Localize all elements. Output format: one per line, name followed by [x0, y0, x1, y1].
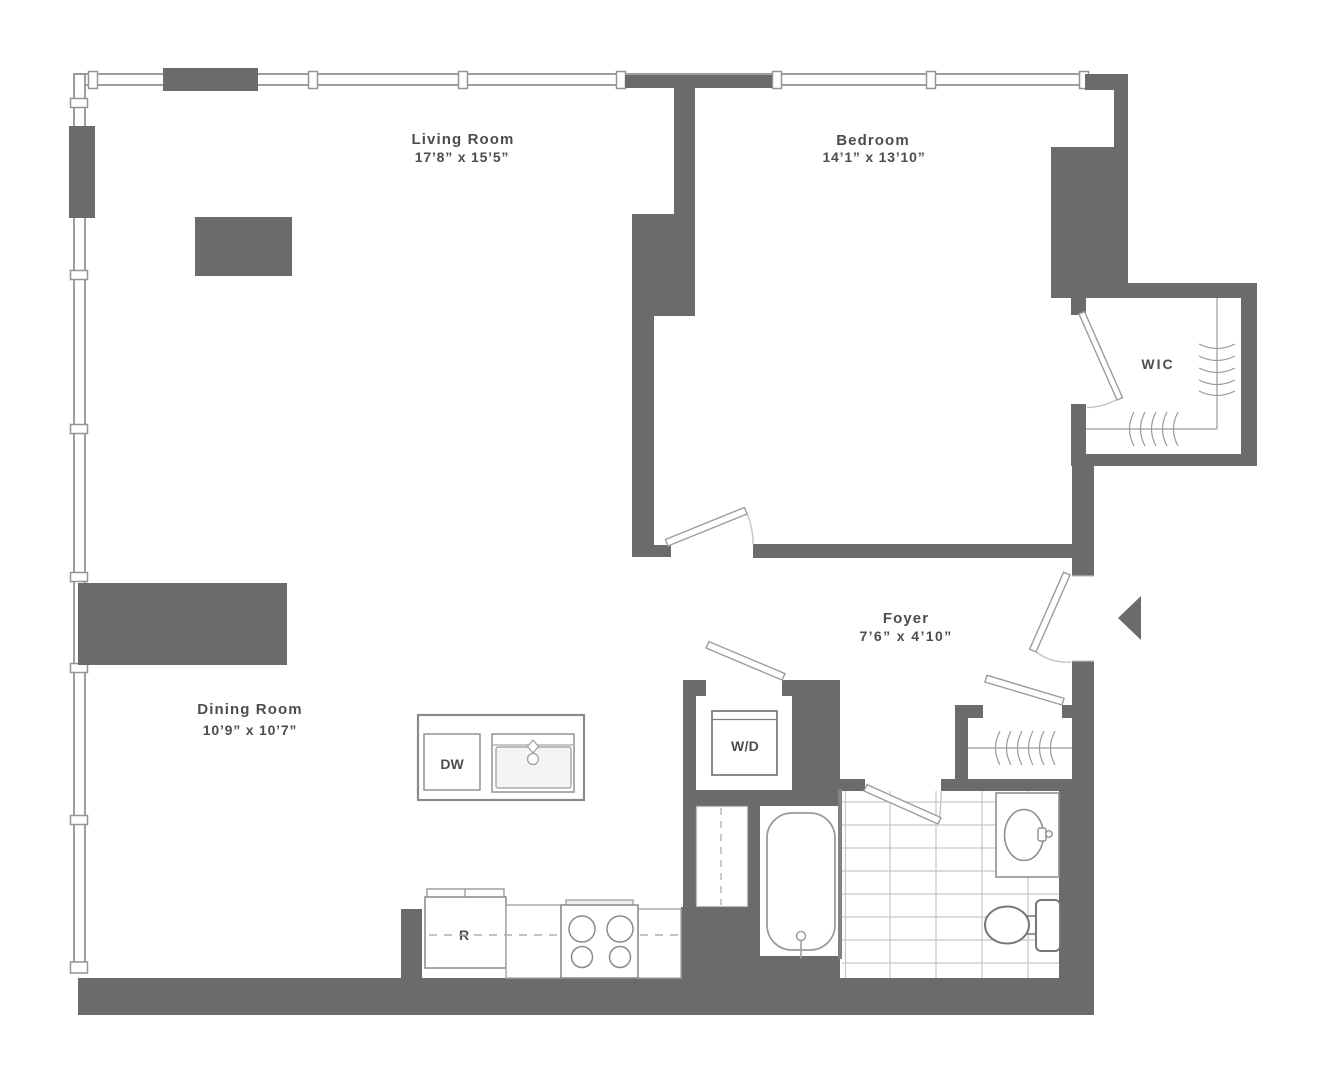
svg-text:W/D: W/D: [731, 738, 759, 754]
svg-text:Living Room: Living Room: [412, 131, 515, 148]
svg-text:Bedroom: Bedroom: [836, 132, 910, 149]
svg-text:DW: DW: [440, 756, 464, 772]
svg-text:17’8” x 15’5”: 17’8” x 15’5”: [415, 149, 509, 165]
svg-text:Dining Room: Dining Room: [197, 701, 302, 718]
svg-text:10’9” x 10’7”: 10’9” x 10’7”: [203, 722, 297, 738]
svg-text:WIC: WIC: [1141, 356, 1174, 372]
svg-text:14’1” x 13’10”: 14’1” x 13’10”: [822, 149, 925, 165]
svg-text:Foyer: Foyer: [883, 610, 929, 627]
svg-text:7’6” x 4’10”: 7’6” x 4’10”: [859, 628, 952, 644]
